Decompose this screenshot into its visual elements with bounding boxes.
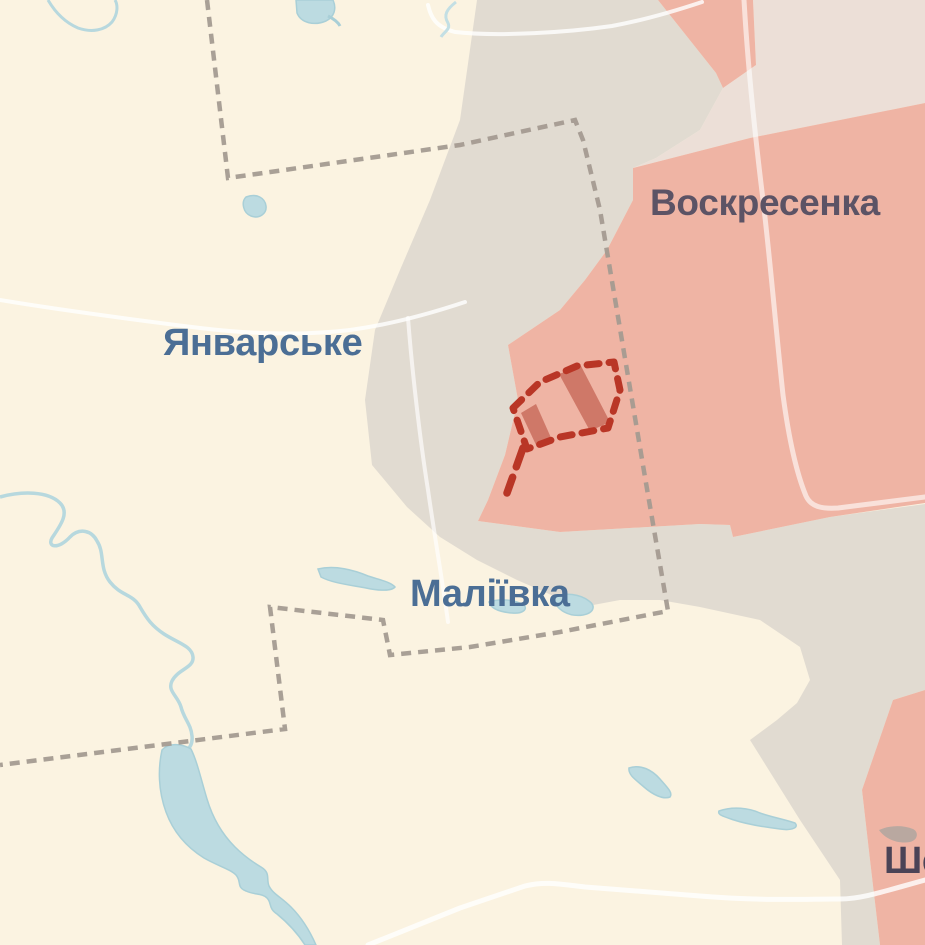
label-she-partial: Ше bbox=[884, 840, 925, 882]
label-voskresenka: Воскресенка bbox=[650, 182, 881, 223]
pond-west bbox=[243, 196, 266, 217]
label-maliivka: Маліївка bbox=[410, 573, 571, 615]
pond-top-center bbox=[296, 0, 335, 23]
label-yanvarske: Январське bbox=[163, 322, 362, 364]
map-canvas[interactable]: Воскресенка Январське Маліївка Ше bbox=[0, 0, 925, 945]
